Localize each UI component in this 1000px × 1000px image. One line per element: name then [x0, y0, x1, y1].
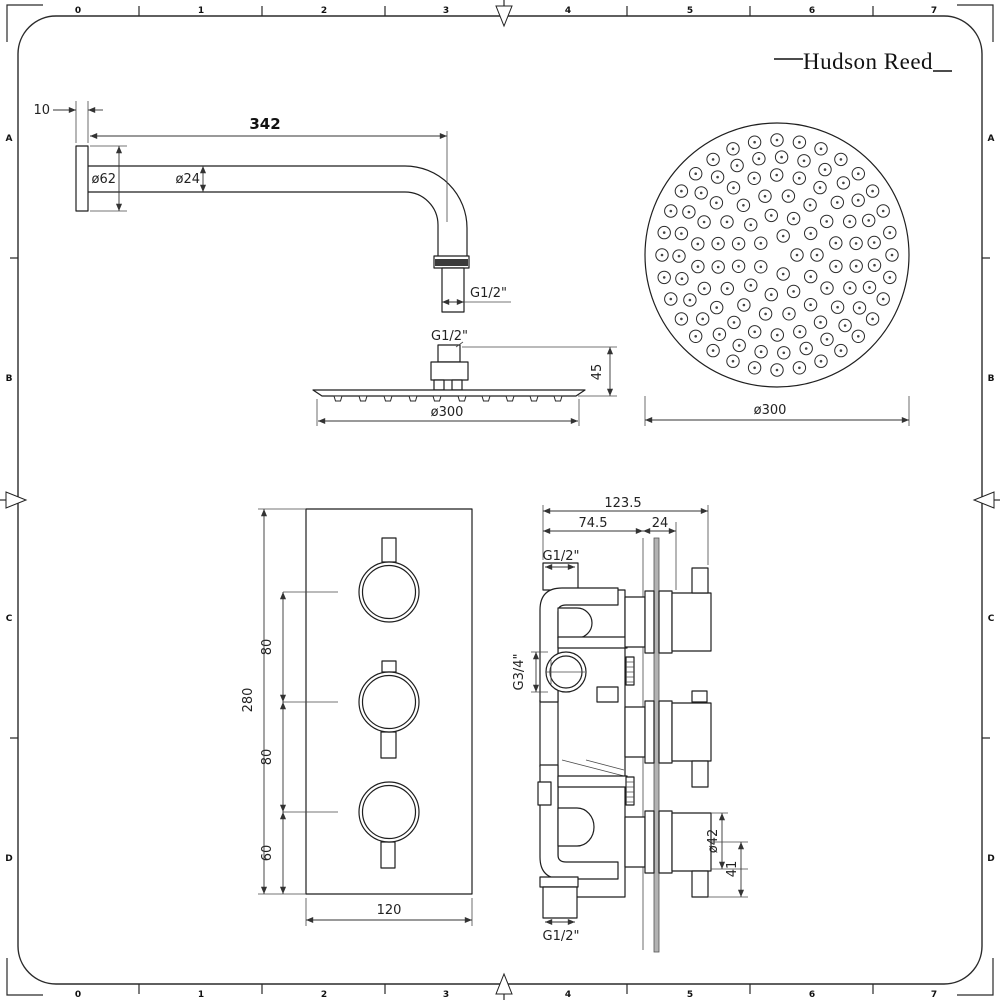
dim-lower-spacing: 80	[260, 749, 275, 766]
ruler-number: 7	[931, 990, 937, 1000]
ruler-number: 4	[565, 6, 571, 16]
wall-plate-edge	[654, 538, 659, 952]
handle-knob	[672, 703, 711, 761]
dim-handle-length: 41	[725, 861, 740, 878]
wall-flange	[76, 146, 88, 211]
ruler-letter: A	[988, 134, 995, 144]
drawing-canvas: 0 1 2 3 4 5 6 7 0 1 2 3 4 5 6 7 A B C D …	[0, 0, 1000, 1000]
ruler-number: 2	[321, 990, 327, 1000]
dim-overall-depth: 123.5	[604, 496, 641, 511]
body-bar-bottom	[558, 776, 627, 787]
ruler-letter: B	[988, 374, 995, 384]
dim-upper-spacing: 80	[260, 639, 275, 656]
body-side-lug	[538, 782, 551, 805]
ruler-number: 0	[75, 6, 81, 16]
dim-bottom-offset: 60	[260, 845, 275, 862]
ruler-number: 0	[75, 990, 81, 1000]
bottom-foot	[540, 877, 578, 887]
dial-lever-top	[382, 538, 396, 562]
dim-bottom-inlet-thread: G1/2"	[543, 929, 580, 944]
handle-lever-up	[692, 691, 707, 702]
handle-lever	[692, 568, 708, 593]
ruler-number: 3	[443, 990, 449, 1000]
dim-handle-diameter: ø42	[706, 829, 721, 854]
dim-wall-thickness: 10	[33, 103, 50, 118]
dim-flange-diameter: ø62	[92, 172, 117, 187]
handle-knob	[672, 593, 711, 651]
connector-tip	[442, 268, 464, 312]
brand-name: Hudson Reed	[803, 49, 933, 74]
dim-side-inlet-thread: G3/4"	[512, 654, 527, 691]
body-detail-block	[597, 687, 618, 702]
head-disc	[313, 390, 585, 396]
cartridge-thread-top	[626, 657, 634, 685]
dim-plate-to-handle: 24	[652, 516, 669, 531]
dim-plate-height: 280	[241, 688, 256, 713]
valve-dials	[359, 562, 419, 842]
handle-lever-down	[692, 761, 708, 787]
ruler-number: 2	[321, 6, 327, 16]
dial-lever-middle-up	[382, 661, 396, 672]
ruler-letter: B	[6, 374, 13, 384]
dim-head-diameter-face: ø300	[754, 403, 787, 418]
ruler-letter: C	[6, 614, 13, 624]
head-inlet-foot	[434, 380, 444, 390]
ruler-number: 1	[198, 990, 204, 1000]
pipe-arc-detail-top	[558, 608, 592, 638]
page-background	[0, 0, 1000, 1000]
dial-lever-bottom	[381, 842, 395, 868]
ruler-letter: C	[988, 614, 995, 624]
connector-thread-band	[435, 259, 468, 266]
ruler-number: 7	[931, 6, 937, 16]
ruler-letter: D	[987, 854, 994, 864]
dim-arm-diameter: ø24	[176, 172, 201, 187]
head-inlet-stem	[438, 345, 460, 362]
pipe-arc-detail-bottom	[558, 808, 594, 846]
dim-plate-width: 120	[377, 903, 402, 918]
dim-head-diameter-side: ø300	[431, 405, 464, 420]
bottom-inlet-stub	[543, 887, 577, 918]
ruler-number: 4	[565, 990, 571, 1000]
ruler-number: 5	[687, 990, 693, 1000]
body-bar-top	[558, 637, 627, 648]
ruler-letter: A	[6, 134, 13, 144]
ruler-letter: D	[5, 854, 12, 864]
ruler-number: 1	[198, 6, 204, 16]
ruler-number: 5	[687, 6, 693, 16]
dim-arm-length: 342	[249, 115, 280, 133]
dial-lever-middle-down	[381, 732, 396, 758]
ruler-number: 6	[809, 990, 815, 1000]
dim-outlet-thread: G1/2"	[470, 286, 507, 301]
head-inlet-foot	[452, 380, 462, 390]
ruler-number: 6	[809, 6, 815, 16]
cartridge-thread-bottom	[626, 777, 634, 805]
dim-head-height: 45	[590, 364, 605, 381]
handle-lever	[692, 871, 708, 897]
dim-head-inlet-thread: G1/2"	[431, 329, 468, 344]
dim-top-inlet-thread: G1/2"	[543, 549, 580, 564]
ruler-number: 3	[443, 6, 449, 16]
technical-drawing-page: 0 1 2 3 4 5 6 7 0 1 2 3 4 5 6 7 A B C D …	[0, 0, 1000, 1000]
dim-body-depth: 74.5	[579, 516, 608, 531]
head-inlet-block	[431, 362, 468, 380]
